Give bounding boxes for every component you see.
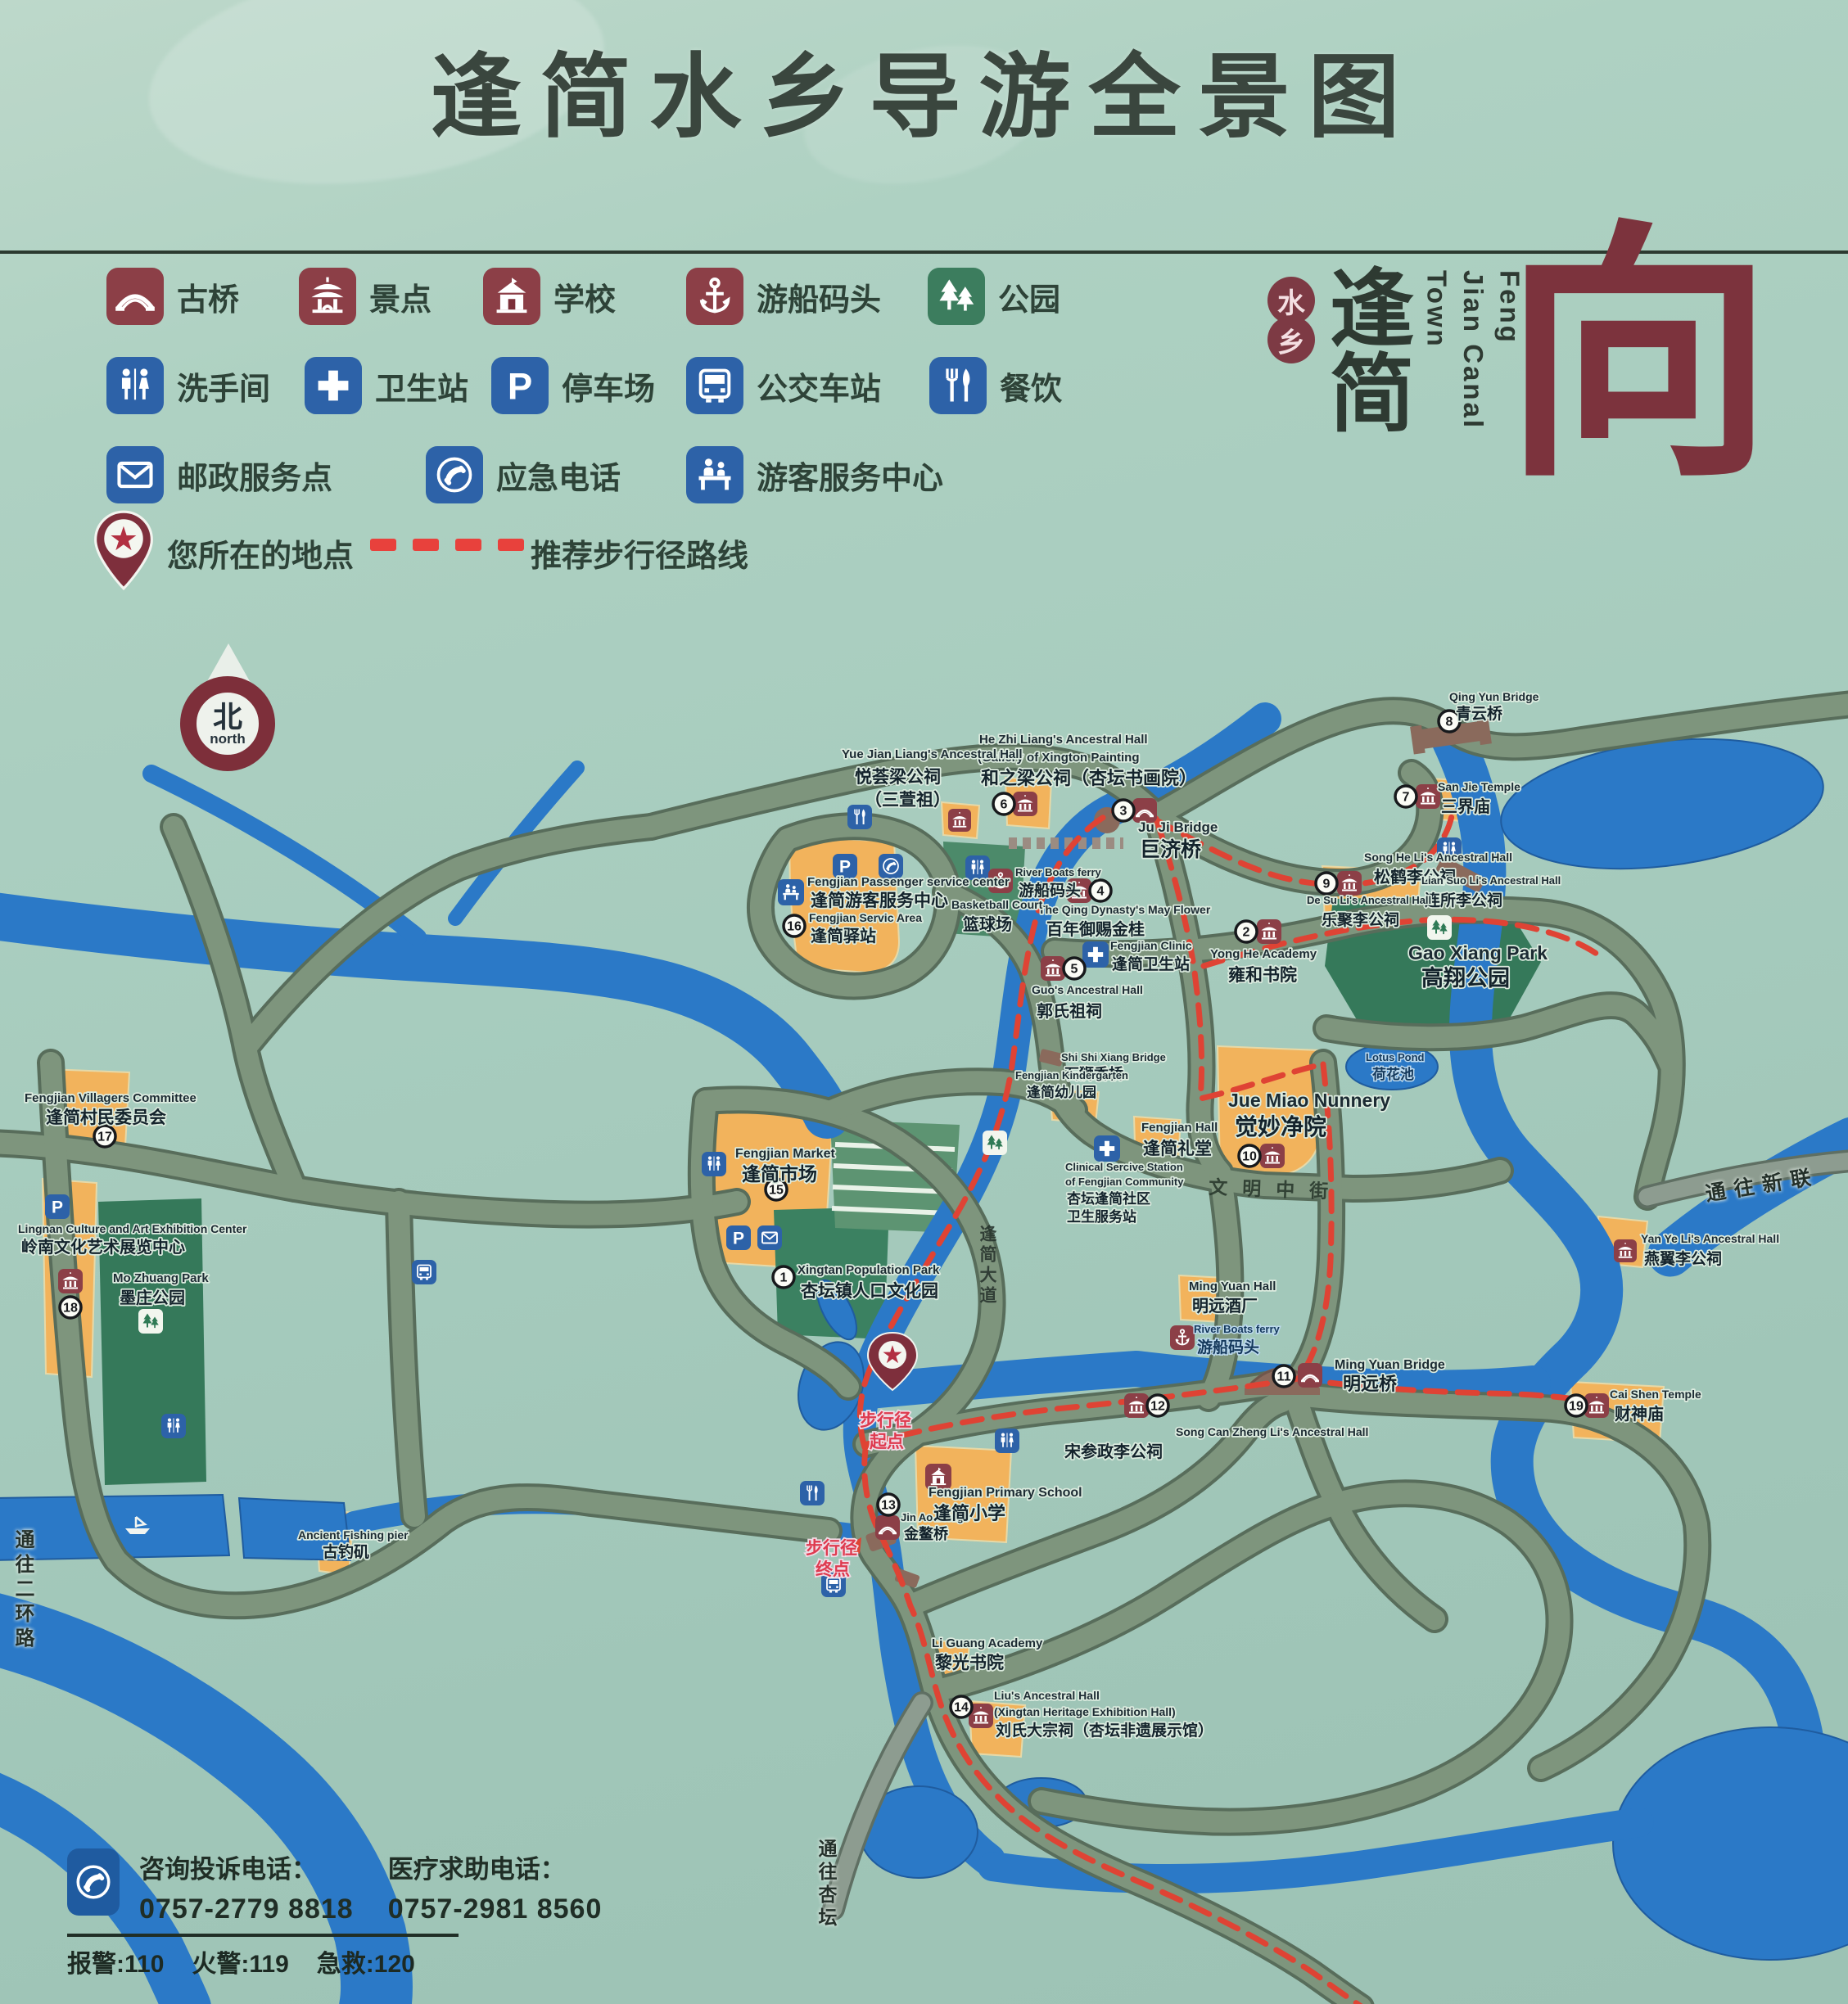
contact-label-1: 咨询投诉电话：	[139, 1848, 354, 1885]
svg-text:（三萱祖）: （三萱祖）	[865, 790, 951, 810]
svg-text:of Fengjian Community: of Fengjian Community	[1065, 1176, 1184, 1188]
svg-text:Gao Xiang Park: Gao Xiang Park	[1408, 942, 1548, 964]
svg-text:Song He Li's Ancestral Hall: Song He Li's Ancestral Hall	[1364, 851, 1512, 864]
svg-text:9: 9	[1323, 878, 1331, 891]
svg-text:逢简卫生站: 逢简卫生站	[1112, 955, 1190, 973]
svg-text:青云桥: 青云桥	[1456, 704, 1503, 723]
svg-text:古钓矶: 古钓矶	[323, 1542, 369, 1561]
bus-station-icon	[412, 1260, 436, 1284]
svg-text:Yan Ye Li's Ancestral Hall: Yan Ye Li's Ancestral Hall	[1641, 1232, 1779, 1245]
park-icon	[138, 1309, 163, 1334]
bridge-icon	[106, 268, 164, 325]
svg-text:雍和书院: 雍和书院	[1228, 965, 1297, 985]
fengjian-map-poster: P	[0, 0, 1848, 2004]
logo-name: 逢简	[1320, 264, 1409, 434]
parking-icon	[491, 357, 549, 414]
legend-label: 学校	[553, 274, 616, 319]
health-station-icon	[305, 357, 362, 414]
svg-text:步行径: 步行径	[860, 1410, 911, 1430]
svg-text:Liu's Ancestral Hall: Liu's Ancestral Hall	[994, 1689, 1100, 1702]
dining-icon	[800, 1481, 825, 1505]
svg-text:Fengjian Market: Fengjian Market	[735, 1147, 835, 1161]
svg-text:高翔公园: 高翔公园	[1421, 965, 1510, 991]
svg-text:He Zhi Liang's Ancestral Hall: He Zhi Liang's Ancestral Hall	[979, 733, 1148, 747]
bus-station-icon	[686, 357, 743, 414]
svg-text:2: 2	[1243, 926, 1250, 940]
svg-text:逢简市场: 逢简市场	[742, 1163, 817, 1185]
svg-text:Fengjian Passenger service cen: Fengjian Passenger service center	[807, 875, 1010, 889]
scenic-spot-icon	[1041, 956, 1065, 981]
svg-text:巨济桥: 巨济桥	[1140, 837, 1201, 861]
ambulance-number: 急救:120	[317, 1943, 415, 1979]
park-icon	[983, 1131, 1007, 1155]
svg-text:Cai Shen Temple: Cai Shen Temple	[1610, 1388, 1701, 1401]
school-icon	[483, 268, 540, 325]
svg-text:Fengjian Hall: Fengjian Hall	[1141, 1121, 1218, 1135]
svg-text:乐聚李公祠: 乐聚李公祠	[1322, 910, 1399, 929]
svg-text:篮球场: 篮球场	[962, 914, 1012, 934]
police-number: 报警:110	[67, 1943, 164, 1979]
phone-icon	[67, 1848, 120, 1916]
svg-text:8: 8	[1446, 715, 1453, 729]
svg-text:3: 3	[1120, 805, 1127, 819]
svg-text:卫生服务站: 卫生服务站	[1067, 1208, 1136, 1225]
legend-label: 洗手间	[177, 363, 270, 408]
emergency-numbers: 报警:110 火警:119 急救:120	[67, 1943, 968, 1979]
svg-text:19: 19	[1569, 1400, 1584, 1414]
svg-text:Yong He Academy: Yong He Academy	[1210, 947, 1317, 961]
contact-number-1: 0757-2779 8818	[139, 1893, 354, 1925]
svg-text:Xingtan Population Park: Xingtan Population Park	[797, 1263, 940, 1277]
restroom-icon	[106, 357, 164, 414]
restroom-icon	[702, 1152, 726, 1176]
svg-text:Ming Yuan Bridge: Ming Yuan Bridge	[1335, 1358, 1445, 1372]
svg-text:连所李公祠: 连所李公祠	[1425, 891, 1502, 909]
svg-text:11: 11	[1277, 1370, 1291, 1384]
logo-calligraphy-glyph: 向	[1503, 219, 1847, 530]
legend-label: 游船码头	[757, 274, 881, 319]
fire-number: 火警:119	[192, 1943, 288, 1979]
svg-text:Jue Miao Nunnery: Jue Miao Nunnery	[1228, 1090, 1390, 1111]
boat-dock-icon	[1170, 1325, 1195, 1350]
svg-text:(Xingtan Heritage Exhibition H: (Xingtan Heritage Exhibition Hall)	[994, 1705, 1176, 1718]
svg-text:De Su Li's Ancestral Hall: De Su Li's Ancestral Hall	[1307, 894, 1431, 906]
boat-dock-icon	[686, 268, 743, 325]
visitor-center-icon	[778, 879, 804, 905]
svg-text:宋参政李公祠: 宋参政李公祠	[1064, 1442, 1163, 1461]
svg-text:Fengjian Kindergarten: Fengjian Kindergarten	[1015, 1069, 1128, 1081]
bridge-icon	[1298, 1363, 1322, 1388]
contact-info: 咨询投诉电话： 0757-2779 8818 医疗求助电话： 0757-2981…	[67, 1848, 968, 1979]
legend-label: 公园	[998, 274, 1060, 319]
postal-icon	[757, 1225, 782, 1250]
svg-text:杏坛镇人口文化园: 杏坛镇人口文化园	[801, 1281, 938, 1301]
svg-text:Mo Zhuang Park: Mo Zhuang Park	[113, 1271, 209, 1285]
svg-text:15: 15	[769, 1184, 784, 1198]
svg-text:River Boats ferry: River Boats ferry	[1194, 1323, 1281, 1335]
scenic-spot-icon	[299, 268, 356, 325]
park-icon	[1427, 915, 1452, 940]
svg-text:Lotus Pond: Lotus Pond	[1366, 1051, 1425, 1063]
svg-text:7: 7	[1403, 791, 1410, 805]
legend-label: 古桥	[177, 274, 239, 319]
svg-text:17: 17	[97, 1131, 112, 1144]
legend-location-label: 您所在的地点	[167, 530, 354, 575]
svg-text:逢简幼儿园: 逢简幼儿园	[1027, 1084, 1096, 1100]
svg-text:5: 5	[1071, 963, 1078, 977]
svg-text:杏坛逢简社区: 杏坛逢简社区	[1067, 1190, 1150, 1207]
parking-icon	[726, 1225, 751, 1250]
legend-label: 景点	[369, 274, 432, 319]
svg-text:悦荟梁公祠: 悦荟梁公祠	[855, 767, 941, 787]
svg-text:Basketball Court: Basketball Court	[951, 898, 1043, 911]
svg-text:明远桥: 明远桥	[1343, 1374, 1397, 1394]
svg-text:★: ★	[882, 1342, 904, 1369]
svg-text:Ju Ji Bridge: Ju Ji Bridge	[1138, 819, 1218, 835]
svg-text:18: 18	[63, 1302, 78, 1316]
svg-text:游船码头: 游船码头	[1197, 1338, 1259, 1356]
svg-text:6: 6	[1001, 798, 1008, 812]
scenic-spot-icon	[1124, 1393, 1149, 1418]
shuixiang-seal: 水 乡	[1267, 277, 1315, 363]
contact-divider	[67, 1934, 459, 1937]
scenic-spot-icon	[1260, 1144, 1285, 1168]
north-badge: 北 north	[180, 676, 275, 771]
svg-text:13: 13	[881, 1499, 896, 1513]
bridge-icon	[875, 1515, 900, 1540]
scenic-spot-icon	[1416, 784, 1440, 809]
svg-text:San Jie Temple: San Jie Temple	[1438, 780, 1520, 793]
svg-text:The Qing Dynasty's May Flower: The Qing Dynasty's May Flower	[1038, 903, 1211, 916]
svg-text:Song Can Zheng Li's Ancestral: Song Can Zheng Li's Ancestral Hall	[1176, 1425, 1368, 1438]
visitor-center-icon	[686, 446, 743, 503]
svg-text:10: 10	[1242, 1150, 1257, 1164]
svg-text:明远酒厂: 明远酒厂	[1192, 1297, 1258, 1316]
svg-text:Li Guang Academy: Li Guang Academy	[932, 1636, 1043, 1650]
svg-text:岭南文化艺术展览中心: 岭南文化艺术展览中心	[21, 1237, 185, 1257]
svg-text:Yue Jian Liang's Ancestral Hal: Yue Jian Liang's Ancestral Hall	[842, 747, 1023, 761]
svg-text:三界庙: 三界庙	[1441, 797, 1490, 816]
legend-label: 游客服务中心	[757, 453, 943, 498]
route-dash-sample	[370, 539, 524, 551]
svg-text:逢简驿站: 逢简驿站	[811, 926, 876, 946]
svg-text:14: 14	[954, 1701, 969, 1715]
svg-text:郭氏祖祠: 郭氏祖祠	[1037, 1001, 1102, 1021]
park-icon	[928, 268, 985, 325]
roadsign-erhuan: 通往二环路	[8, 1529, 37, 1652]
scenic-spot-icon	[1013, 792, 1037, 816]
legend-label: 应急电话	[496, 453, 621, 498]
legend-label: 停车场	[562, 363, 655, 408]
svg-text:百年御赐金桂: 百年御赐金桂	[1046, 919, 1145, 939]
svg-text:River Boats ferry: River Boats ferry	[1015, 866, 1102, 878]
emergency-phone-icon	[426, 446, 483, 503]
svg-text:16: 16	[787, 920, 802, 934]
scenic-spot-icon	[58, 1269, 83, 1293]
postal-icon	[106, 446, 164, 503]
svg-text:4: 4	[1097, 885, 1105, 899]
legend-label: 邮政服务点	[177, 453, 332, 498]
svg-text:刘氏大宗祠（杏坛非遗展示馆）: 刘氏大宗祠（杏坛非遗展示馆）	[996, 1721, 1213, 1740]
svg-text:逢简小学: 逢简小学	[933, 1503, 1005, 1523]
scenic-spot-icon	[1337, 871, 1362, 896]
svg-text:Lian Suo Li's Ancestral Hall: Lian Suo Li's Ancestral Hall	[1421, 874, 1561, 887]
health-station-icon	[1094, 1135, 1120, 1162]
contact-label-2: 医疗求助电话：	[388, 1848, 603, 1885]
svg-text:Fengjian Servic Area: Fengjian Servic Area	[809, 911, 922, 924]
svg-text:起点: 起点	[869, 1432, 904, 1451]
legend-label: 卫生站	[375, 363, 468, 408]
svg-text:12: 12	[1150, 1400, 1165, 1414]
svg-text:Qing Yun Bridge: Qing Yun Bridge	[1449, 690, 1539, 703]
svg-text:Lingnan Culture and Art Exhibi: Lingnan Culture and Art Exhibition Cente…	[18, 1222, 247, 1235]
svg-text:1: 1	[780, 1271, 788, 1285]
page-title: 逢简水乡导游全景图	[0, 23, 1848, 156]
contact-number-2: 0757-2981 8560	[388, 1893, 603, 1925]
svg-text:和之梁公祠（杏坛书画院）: 和之梁公祠（杏坛书画院）	[981, 768, 1197, 788]
restroom-icon	[161, 1414, 186, 1438]
scenic-spot-icon	[948, 809, 971, 832]
legend-route-label: 推荐步行径路线	[531, 530, 748, 575]
svg-text:燕翼李公祠: 燕翼李公祠	[1644, 1249, 1722, 1268]
street-dadao: 逢简大道	[974, 1225, 999, 1307]
restroom-icon	[995, 1429, 1019, 1453]
svg-text:Fengjian Villagers Committee: Fengjian Villagers Committee	[25, 1091, 197, 1105]
svg-text:Clinical Sercive Station: Clinical Sercive Station	[1065, 1161, 1183, 1173]
svg-text:Shi Shi Xiang Bridge: Shi Shi Xiang Bridge	[1061, 1051, 1166, 1063]
health-station-icon	[1082, 941, 1109, 968]
svg-text:Ancient Fishing pier: Ancient Fishing pier	[298, 1528, 409, 1541]
svg-text:墨庄公园: 墨庄公园	[120, 1288, 185, 1307]
scenic-spot-icon	[1614, 1239, 1637, 1262]
svg-text:★: ★	[109, 520, 138, 557]
svg-text:逢简游客服务中心: 逢简游客服务中心	[811, 891, 948, 910]
dining-icon	[929, 357, 987, 414]
svg-text:黎光书院: 黎光书院	[935, 1653, 1004, 1672]
scenic-spot-icon	[1257, 919, 1281, 944]
legend-label: 餐饮	[1000, 363, 1062, 408]
svg-text:Fengjian Clinic: Fengjian Clinic	[1110, 939, 1192, 952]
svg-text:Guo's Ancestral Hall: Guo's Ancestral Hall	[1032, 983, 1143, 996]
svg-text:游船码头: 游船码头	[1019, 881, 1081, 900]
svg-text:逢简礼堂: 逢简礼堂	[1143, 1139, 1212, 1158]
svg-text:金鳌桥: 金鳌桥	[903, 1525, 949, 1542]
legend-label: 公交车站	[757, 363, 881, 408]
svg-text:Fengjian Primary School: Fengjian Primary School	[929, 1486, 1082, 1500]
svg-text:逢简村民委员会: 逢简村民委员会	[46, 1108, 166, 1127]
svg-text:Ming Yuan Hall: Ming Yuan Hall	[1189, 1280, 1276, 1293]
svg-text:荷花池: 荷花池	[1372, 1066, 1414, 1082]
svg-text:财神庙: 财神庙	[1615, 1404, 1664, 1424]
svg-text:终点: 终点	[816, 1559, 850, 1579]
svg-text:步行径: 步行径	[806, 1538, 857, 1558]
parking-icon	[45, 1194, 70, 1219]
current-location-icon: ★	[92, 509, 156, 591]
svg-text:觉妙净院: 觉妙净院	[1235, 1113, 1326, 1140]
